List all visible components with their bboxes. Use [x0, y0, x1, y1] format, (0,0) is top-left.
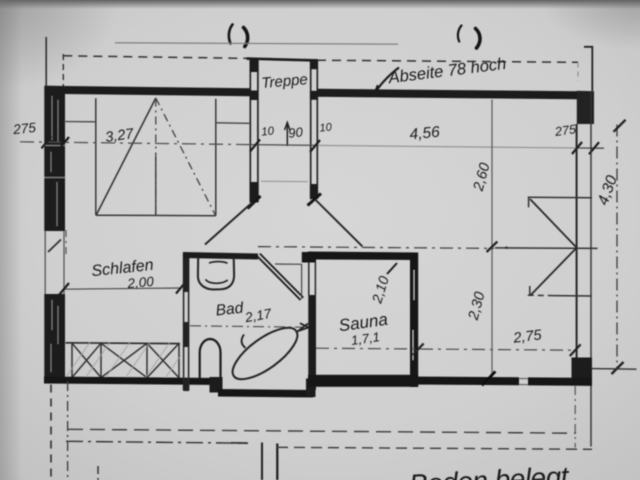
svg-text:Bad: Bad [215, 299, 246, 319]
svg-text:10: 10 [261, 125, 276, 138]
svg-text:4,56: 4,56 [409, 124, 441, 144]
svg-text:90: 90 [288, 124, 305, 141]
svg-text:275: 275 [12, 120, 37, 137]
svg-text:10: 10 [319, 121, 333, 134]
